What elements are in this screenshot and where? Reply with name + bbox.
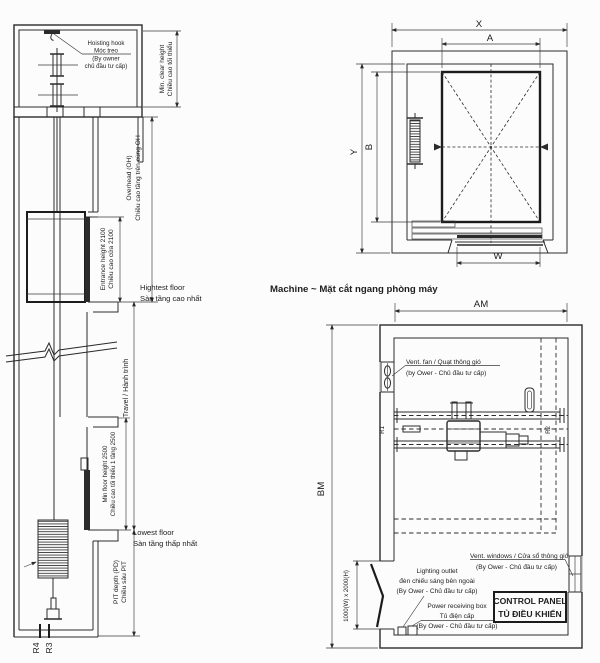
min-floor-height-en: Min floor height 2500 <box>102 445 109 503</box>
counterweight-plan <box>407 113 423 169</box>
travel-label: Travel / Hành trình <box>122 359 130 418</box>
rail-bracket-right <box>540 144 548 151</box>
highest-floor-en: Hightest floor <box>140 283 185 292</box>
car-plan-dimensions: X A Y B W <box>349 19 567 267</box>
car-plan-view: X A Y B W <box>349 19 567 267</box>
entrance-height-en: Entrance height 2100 <box>100 227 107 290</box>
vent-windows-label: Vent. windows / Cửa sổ thông gió <box>470 552 569 560</box>
rope-ref-r1: R1 <box>379 425 386 433</box>
min-clear-height-en: Min. clear height <box>159 45 166 94</box>
lighting-outlet-byowner: (By Ower - Chủ đầu tư cấp) <box>396 586 477 595</box>
overhead-en: Overhead (OH) <box>126 155 133 200</box>
vent-fan-byowner: (by Ower - Chủ đầu tư cấp) <box>406 368 486 377</box>
car-door-sills <box>412 221 545 245</box>
car-outline-plan <box>434 64 548 243</box>
machine-room-door <box>371 561 395 629</box>
entrance-height-vi: Chiều cao cửa 2100 <box>106 229 115 289</box>
min-floor-height-vi: Chiều cao tối thiểu 1 tầng 2500 <box>110 431 117 516</box>
counterweight <box>24 520 68 578</box>
dim-w: W <box>493 251 503 262</box>
hoisting-hook-label-en: Hoisting hook <box>88 40 126 47</box>
pit-depth-en: PIT depth (PD) <box>113 560 120 604</box>
pit-buffer <box>44 598 62 619</box>
control-panel-label-en: CONTROL PANEL <box>493 596 566 606</box>
vent-fan <box>380 362 395 392</box>
rope-ref-r4: R4 <box>31 642 41 653</box>
rope-ref-r2: R2 <box>545 425 552 433</box>
power-box-vi: Tủ điện cấp <box>440 611 475 620</box>
dim-x: X <box>476 19 483 30</box>
control-panel: CONTROL PANEL TỦ ĐIỀU KHIỂN <box>493 592 566 622</box>
lighting-outlet-en: Lighting outlet <box>416 568 457 575</box>
overhead-vi: Chiều cao tầng trên cùng OH <box>133 135 142 221</box>
break-lines <box>6 342 117 362</box>
rope-ref-r3: R3 <box>44 642 54 653</box>
elevation-view: Hoisting hook Móc treo (By owner chủ đầu… <box>6 25 203 654</box>
lowest-floor-en: Lowest floor <box>133 528 174 537</box>
elevator-car <box>27 212 98 302</box>
vent-windows-byowner: (By Ower - Chủ đầu tư cấp) <box>476 562 557 571</box>
machine-room-plan-view: R1 R2 CONTROL PANEL TỦ ĐIỀU KHIỂN AM BM … <box>316 299 583 648</box>
pit-depth-vi: Chiều sâu PIT <box>119 561 128 603</box>
dim-y: Y <box>349 148 360 155</box>
vent-fan-label: Vent. fan / Quạt thông gió <box>406 359 481 366</box>
traction-machine <box>403 388 534 460</box>
landing-door-panel <box>85 217 90 302</box>
hoisting-hook-byowner-1: (By owner <box>92 56 119 63</box>
electrical-boxes <box>398 626 417 635</box>
wall-fill <box>84 470 90 530</box>
control-panel-label-vi: TỦ ĐIỀU KHIỂN <box>498 608 562 619</box>
lowest-floor-vi: Sàn tầng thấp nhất <box>133 539 198 548</box>
sheave-upper <box>38 54 78 76</box>
highest-floor-vi: Sàn tầng cao nhất <box>140 294 203 303</box>
dim-am: AM <box>474 299 488 310</box>
sheave-lower <box>38 84 78 106</box>
hoistway-projection-dashed <box>394 338 556 533</box>
dim-bm: BM <box>316 482 327 496</box>
min-clear-height-vi: Chiều cao tối thiểu <box>165 41 174 96</box>
elevator-drawing-page: Hoisting hook Móc treo (By owner chủ đầu… <box>0 0 600 663</box>
hoisting-hook <box>44 30 60 41</box>
dim-a: A <box>487 33 494 44</box>
power-box-en: Power receiving box <box>427 603 487 610</box>
machine-section-caption: Machine ~ Mặt cắt ngang phòng máy <box>270 283 438 295</box>
rail-bracket-left <box>434 144 442 151</box>
lighting-outlet-vi: đèn chiếu sáng bên ngoài <box>399 576 475 585</box>
hoisting-hook-byowner-2: chủ đầu tư cấp) <box>85 63 128 70</box>
rope-reference-ticks <box>40 624 49 638</box>
machine-plan-labels: Vent. fan / Quạt thông gió (by Ower - Ch… <box>392 359 573 630</box>
power-box-byowner: (By Ower - Chủ đầu tư cấp) <box>416 621 497 630</box>
door-size-label: 1000(W) x 2000(H) <box>343 570 350 622</box>
dim-b: B <box>364 144 375 150</box>
technical-drawing: Hoisting hook Móc treo (By owner chủ đầu… <box>0 0 600 663</box>
vent-window <box>568 556 583 592</box>
hoisting-hook-label-vi: Móc treo <box>94 48 118 55</box>
